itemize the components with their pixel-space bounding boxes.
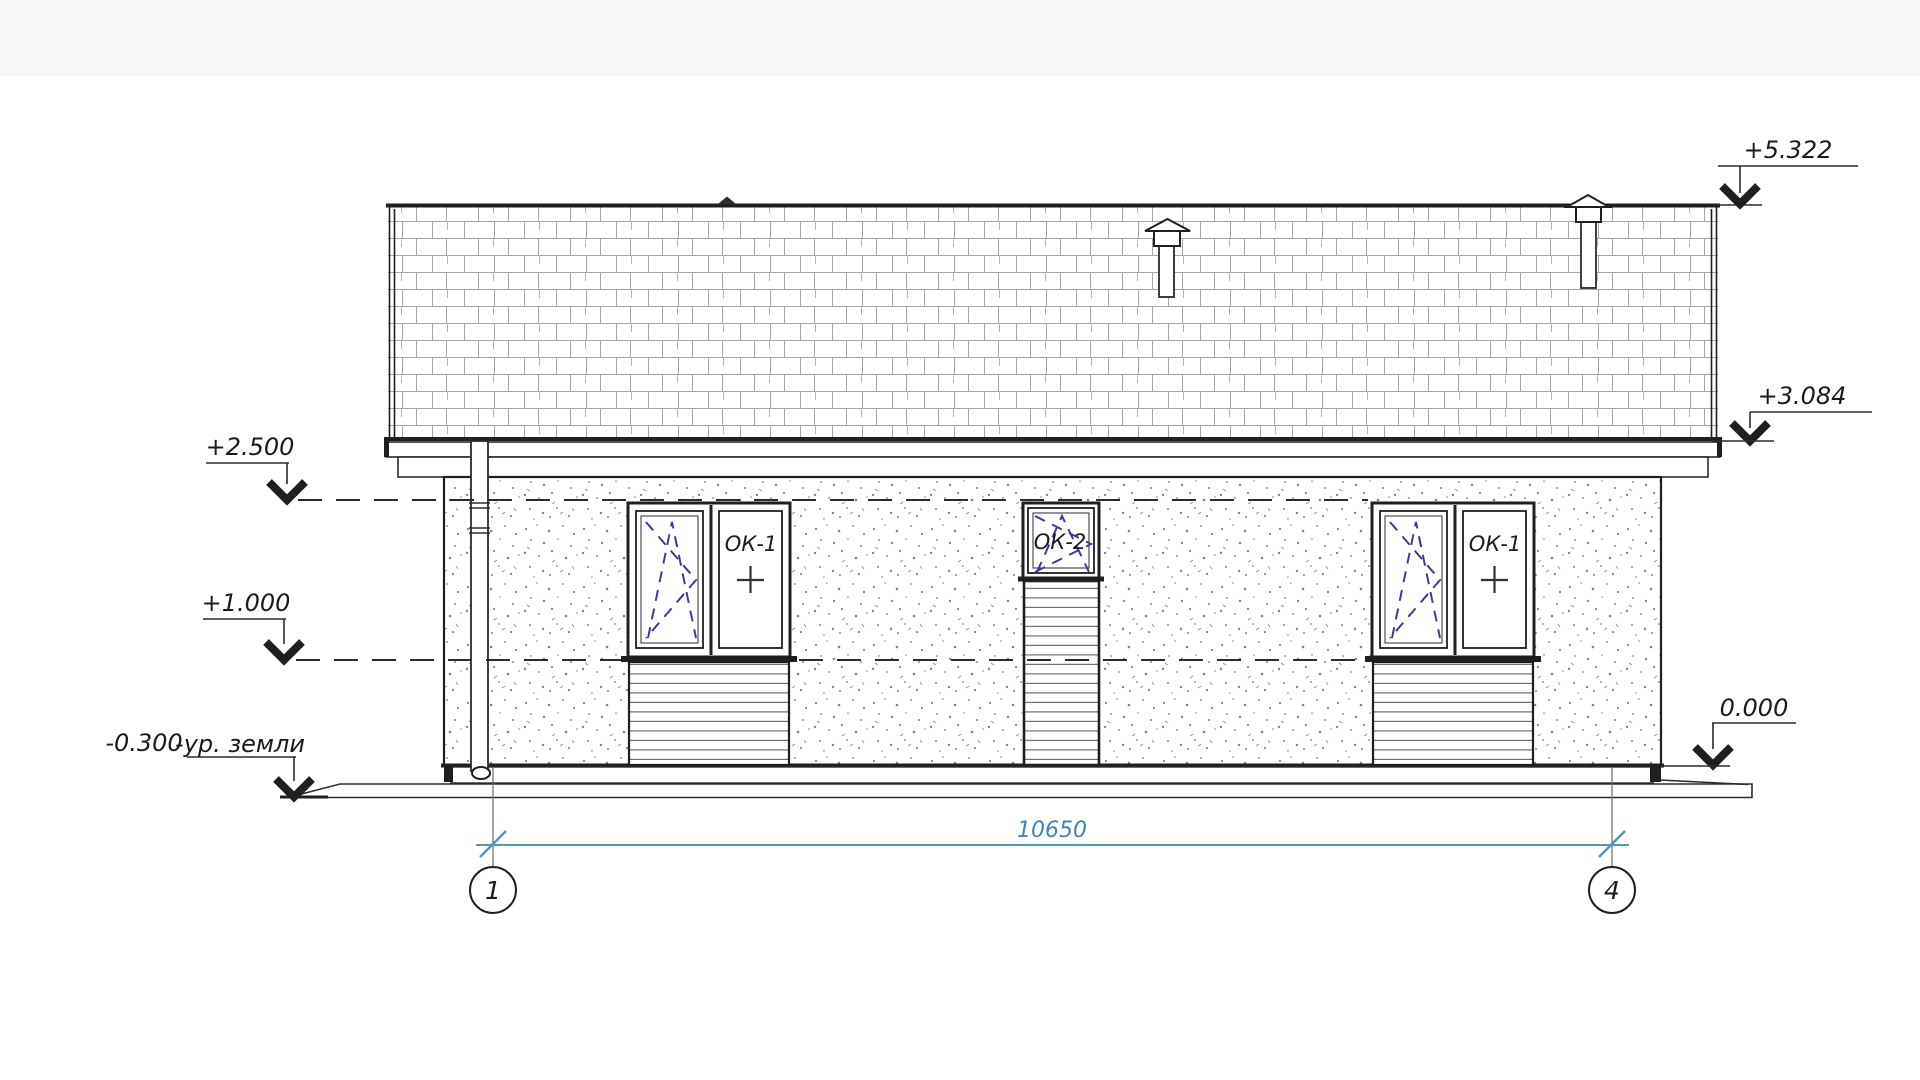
- roof: [386, 197, 1762, 438]
- window-left: ОК-1: [621, 503, 797, 765]
- window-center: ОК-2: [1018, 503, 1104, 765]
- level-value: -0.300: [105, 729, 182, 757]
- downspout: [469, 441, 490, 779]
- axis-number: 4: [1604, 876, 1620, 905]
- window-label: ОК-1: [1469, 532, 1521, 556]
- downspout-pipe: [471, 441, 488, 771]
- level-arrow-icon: [266, 642, 302, 660]
- vent-pipe: [1159, 245, 1174, 297]
- fascia-band: [398, 457, 1708, 477]
- window-label: ОК-1: [725, 532, 777, 556]
- gutter-band: [386, 442, 1720, 457]
- elevation-drawing: ОК-1 ОК-2 ОК-1 +5.322: [0, 0, 1920, 1080]
- level-arrow-icon: [269, 482, 305, 500]
- foundation: [288, 766, 1752, 798]
- axis-number: 1: [485, 876, 501, 905]
- window-right: ОК-1: [1365, 503, 1541, 765]
- level-value: +1.000: [202, 589, 291, 617]
- level-value: +2.500: [206, 433, 295, 461]
- level-mark-zero: 0.000: [1661, 694, 1796, 766]
- level-mark-eaves: +3.084: [1712, 382, 1872, 441]
- spandrel-panel: [629, 662, 789, 765]
- spandrel-panel: [1373, 662, 1533, 765]
- plinth-band: [451, 767, 1653, 783]
- vent-cap-body: [1154, 231, 1180, 246]
- dimension-overall: 10650: [476, 818, 1629, 857]
- level-value: +3.084: [1758, 382, 1847, 410]
- axis-bubble-1: 1: [470, 867, 516, 913]
- ridge-bump: [718, 197, 736, 205]
- roof-shingle-surface: [388, 204, 1718, 437]
- window-frame: [1372, 503, 1534, 657]
- drawing-svg: ОК-1 ОК-2 ОК-1 +5.322: [0, 0, 1920, 1080]
- level-arrow-icon: [1695, 747, 1731, 765]
- window-frame: [628, 503, 790, 657]
- ground-apron: [288, 784, 1752, 798]
- level-mark-upper: +2.500: [206, 433, 305, 500]
- eave-assembly: [384, 439, 1722, 477]
- door-panel: [1024, 581, 1099, 765]
- axis-bubble-4: 4: [1589, 867, 1635, 913]
- level-mark-ground: -0.300 -ур. земли: [105, 729, 328, 797]
- level-mark-middle: +1.000: [202, 589, 302, 660]
- vent-cap-body: [1576, 207, 1601, 222]
- gutter-right-cap: [1717, 440, 1722, 457]
- vent-pipe: [1581, 222, 1596, 288]
- level-value: +5.322: [1744, 136, 1833, 164]
- top-background-band: [0, 0, 1920, 76]
- level-value: 0.000: [1720, 694, 1789, 722]
- plinth-left-stub: [444, 766, 453, 782]
- plinth-right-stub: [1650, 766, 1661, 782]
- dimension-value: 10650: [1017, 818, 1087, 843]
- level-note: -ур. земли: [175, 730, 305, 758]
- gutter-left-cap: [384, 440, 389, 457]
- window-label: ОК-2: [1034, 530, 1086, 554]
- level-mark-ridge: +5.322: [1718, 136, 1858, 204]
- downspout-shoe: [472, 767, 490, 779]
- vent-cap-hood: [1567, 195, 1609, 207]
